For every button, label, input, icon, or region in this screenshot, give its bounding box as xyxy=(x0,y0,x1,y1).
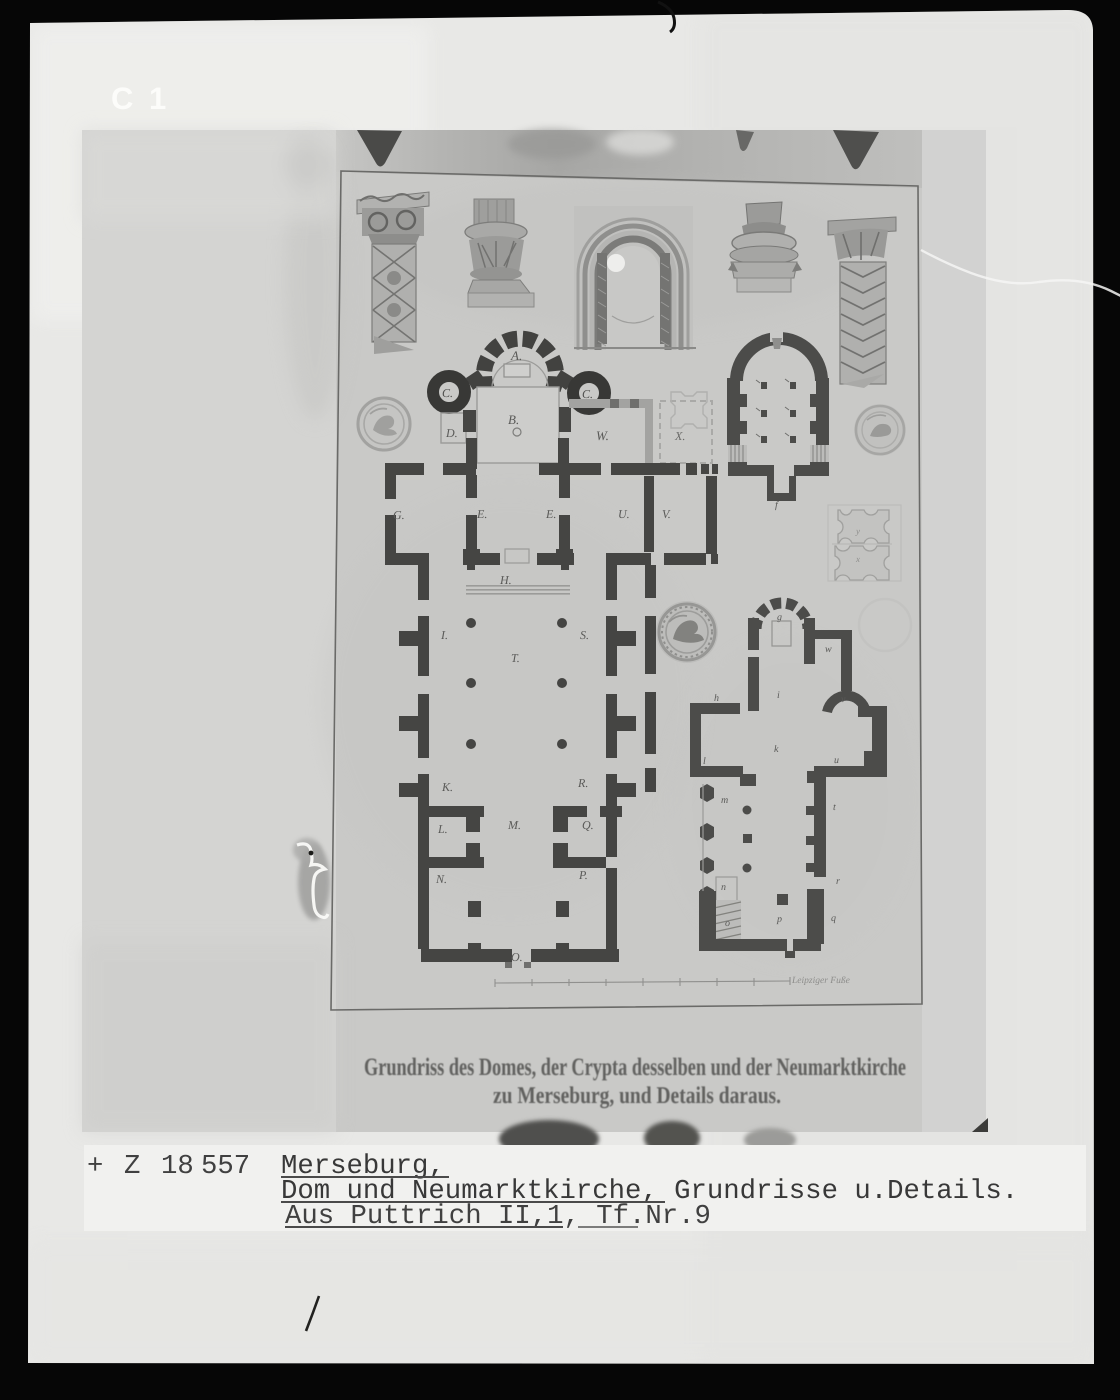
svg-text:W.: W. xyxy=(596,428,609,443)
svg-text:l: l xyxy=(703,756,706,767)
svg-text:n: n xyxy=(721,882,726,893)
svg-text:i: i xyxy=(777,690,780,701)
svg-text:O.: O. xyxy=(511,950,523,964)
svg-text:C.: C. xyxy=(442,386,453,400)
svg-text:x: x xyxy=(855,554,860,564)
svg-text:h: h xyxy=(714,693,719,704)
svg-text:y: y xyxy=(855,526,860,536)
svg-text:X.: X. xyxy=(674,429,685,443)
svg-text:w: w xyxy=(825,644,832,655)
svg-text:N.: N. xyxy=(435,872,447,886)
svg-text:Q.: Q. xyxy=(582,818,594,832)
svg-text:K.: K. xyxy=(441,780,453,794)
svg-text:18: 18 xyxy=(161,1151,194,1182)
svg-text:U.: U. xyxy=(618,507,630,521)
svg-text:1: 1 xyxy=(149,81,166,116)
svg-text:o: o xyxy=(725,918,730,929)
svg-text:p: p xyxy=(776,914,782,925)
svg-text:q: q xyxy=(831,913,836,924)
svg-text:P.: P. xyxy=(578,868,588,882)
svg-text:u: u xyxy=(834,755,839,766)
svg-text:Leipziger Fuße: Leipziger Fuße xyxy=(791,976,850,986)
svg-text:D.: D. xyxy=(445,426,458,440)
svg-text:C: C xyxy=(111,81,133,116)
svg-text:v: v xyxy=(841,694,846,705)
svg-text:H.: H. xyxy=(499,573,512,587)
svg-text:Grundriss des Domes, der Crypt: Grundriss des Domes, der Crypta desselbe… xyxy=(364,1054,906,1081)
svg-text:I.: I. xyxy=(440,628,448,642)
svg-text:557: 557 xyxy=(201,1151,250,1182)
svg-text:r: r xyxy=(836,876,840,887)
svg-text:G.: G. xyxy=(393,508,405,522)
svg-text:zu Merseburg, und Details dara: zu Merseburg, und Details daraus. xyxy=(493,1083,781,1109)
svg-text:V.: V. xyxy=(662,507,671,521)
svg-text:C.: C. xyxy=(582,387,593,401)
svg-text:A.: A. xyxy=(510,348,522,363)
svg-text:k: k xyxy=(774,744,779,755)
svg-text:E.: E. xyxy=(476,507,487,521)
svg-text:E.: E. xyxy=(545,507,556,521)
svg-text:m: m xyxy=(721,795,728,806)
svg-text:R.: R. xyxy=(577,776,588,790)
svg-text:L.: L. xyxy=(437,822,448,836)
svg-text:Z: Z xyxy=(124,1151,140,1182)
svg-text:t: t xyxy=(833,802,836,813)
svg-text:B.: B. xyxy=(508,412,519,427)
svg-text:S.: S. xyxy=(580,628,589,642)
svg-text:+: + xyxy=(87,1151,103,1182)
svg-text:T.: T. xyxy=(511,651,520,665)
svg-text:M.: M. xyxy=(507,818,521,832)
